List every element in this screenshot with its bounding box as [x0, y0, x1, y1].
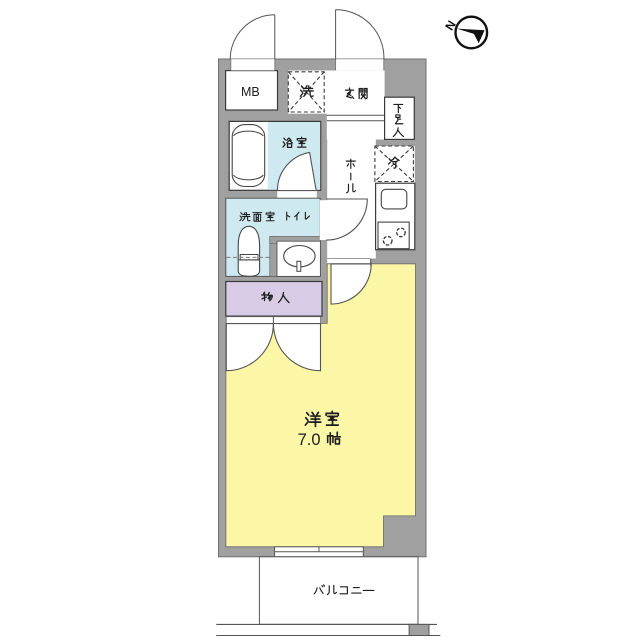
svg-text:7.0: 7.0 — [298, 431, 321, 449]
svg-text:MB: MB — [241, 85, 260, 99]
